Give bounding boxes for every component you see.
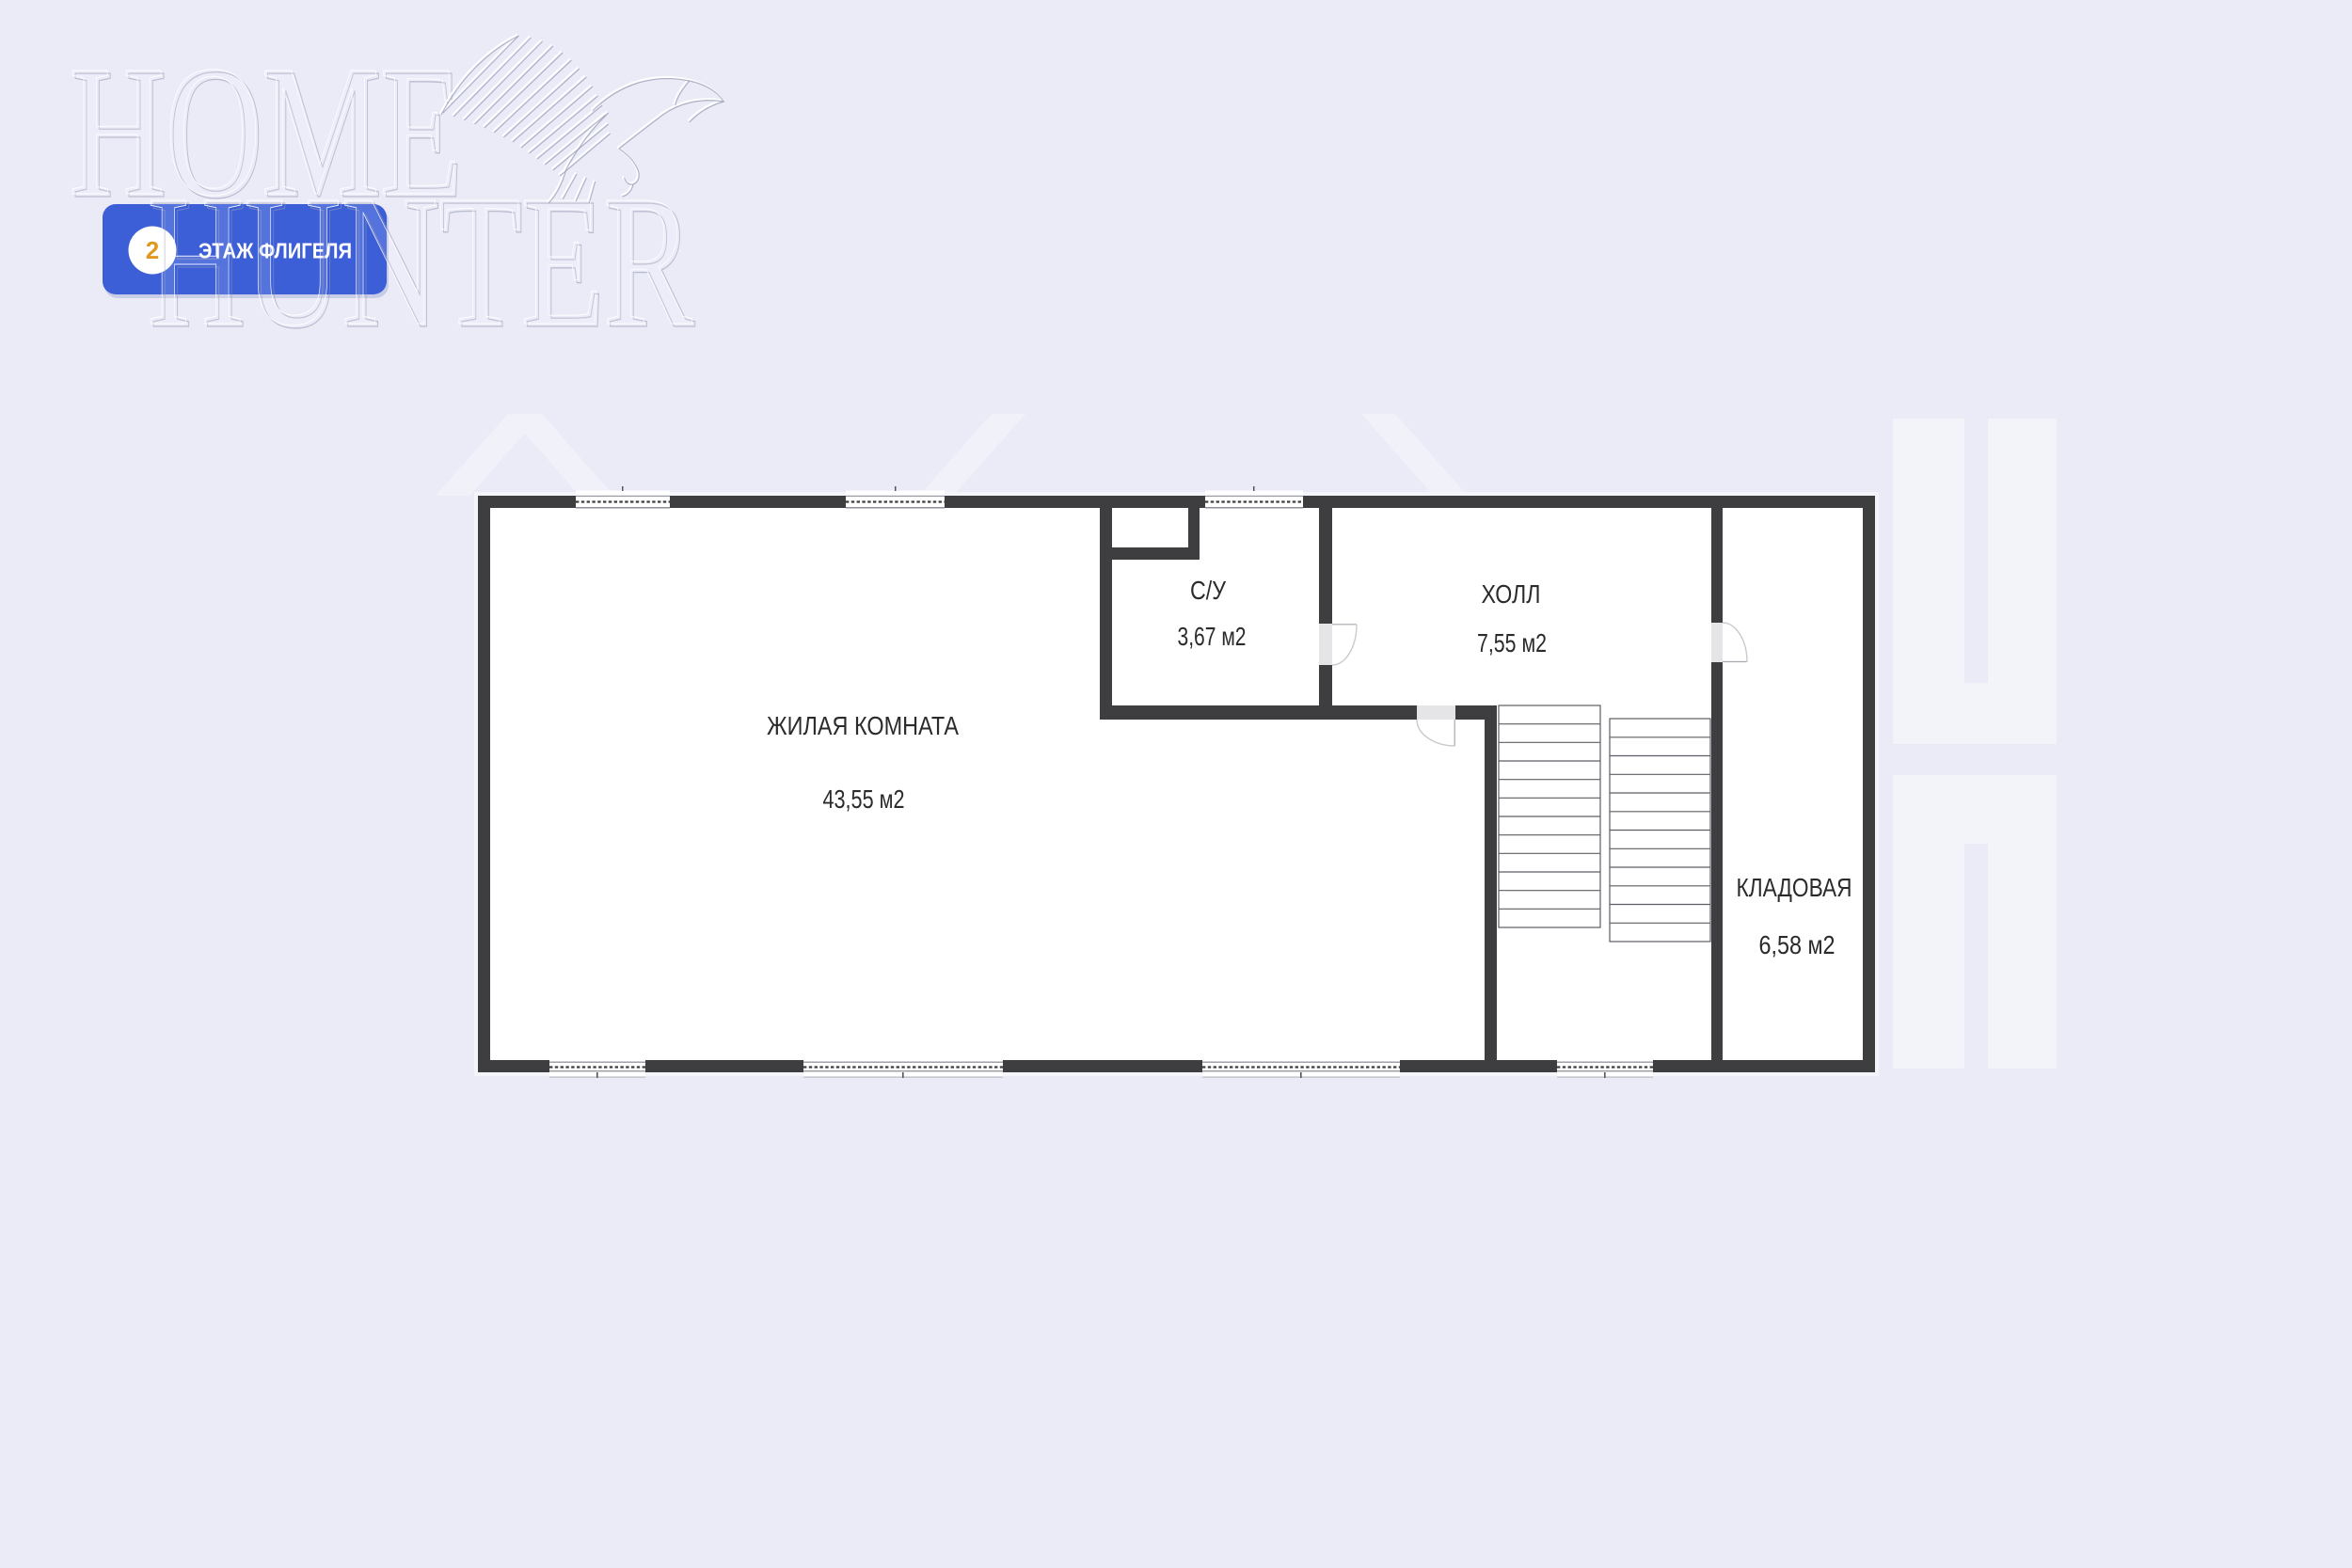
svg-text:ХОЛЛ: ХОЛЛ xyxy=(1482,579,1541,609)
svg-text:HUNTER: HUNTER xyxy=(147,157,692,365)
svg-text:ЖИЛАЯ КОМНАТА: ЖИЛАЯ КОМНАТА xyxy=(767,711,960,740)
svg-text:7,55 м2: 7,55 м2 xyxy=(1477,628,1547,657)
svg-text:3,67 м2: 3,67 м2 xyxy=(1178,622,1247,651)
svg-text:6,58 м2: 6,58 м2 xyxy=(1759,930,1836,959)
svg-text:С/У: С/У xyxy=(1190,576,1226,605)
svg-text:43,55 м2: 43,55 м2 xyxy=(823,784,905,814)
svg-text:КЛАДОВАЯ: КЛАДОВАЯ xyxy=(1737,873,1852,902)
